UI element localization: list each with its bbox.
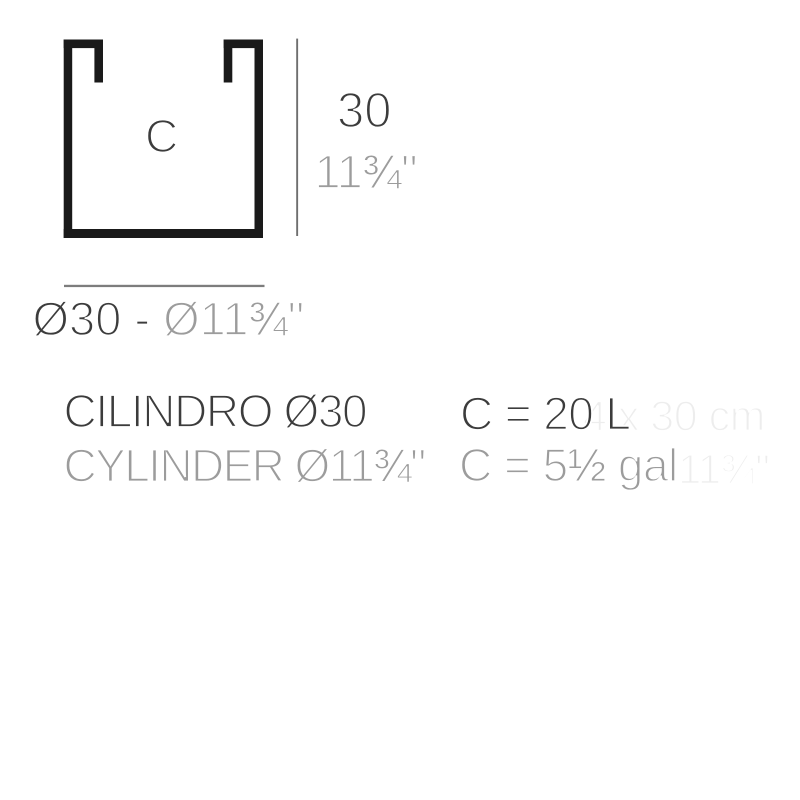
svg-text:11¾": 11¾" [678, 446, 770, 493]
svg-text:11¾": 11¾" [315, 145, 418, 198]
svg-text:CILINDRO Ø30: CILINDRO Ø30 [64, 385, 367, 437]
svg-text:C = 5½ gal: C = 5½ gal [459, 439, 678, 491]
svg-text:30: 30 [337, 84, 392, 138]
svg-text:CYLINDER Ø11¾": CYLINDER Ø11¾" [64, 440, 425, 492]
svg-text:C = 20 L: C = 20 L [460, 388, 630, 440]
svg-text:C: C [145, 110, 178, 162]
svg-text:Ø30 - Ø11¾": Ø30 - Ø11¾" [33, 292, 305, 345]
